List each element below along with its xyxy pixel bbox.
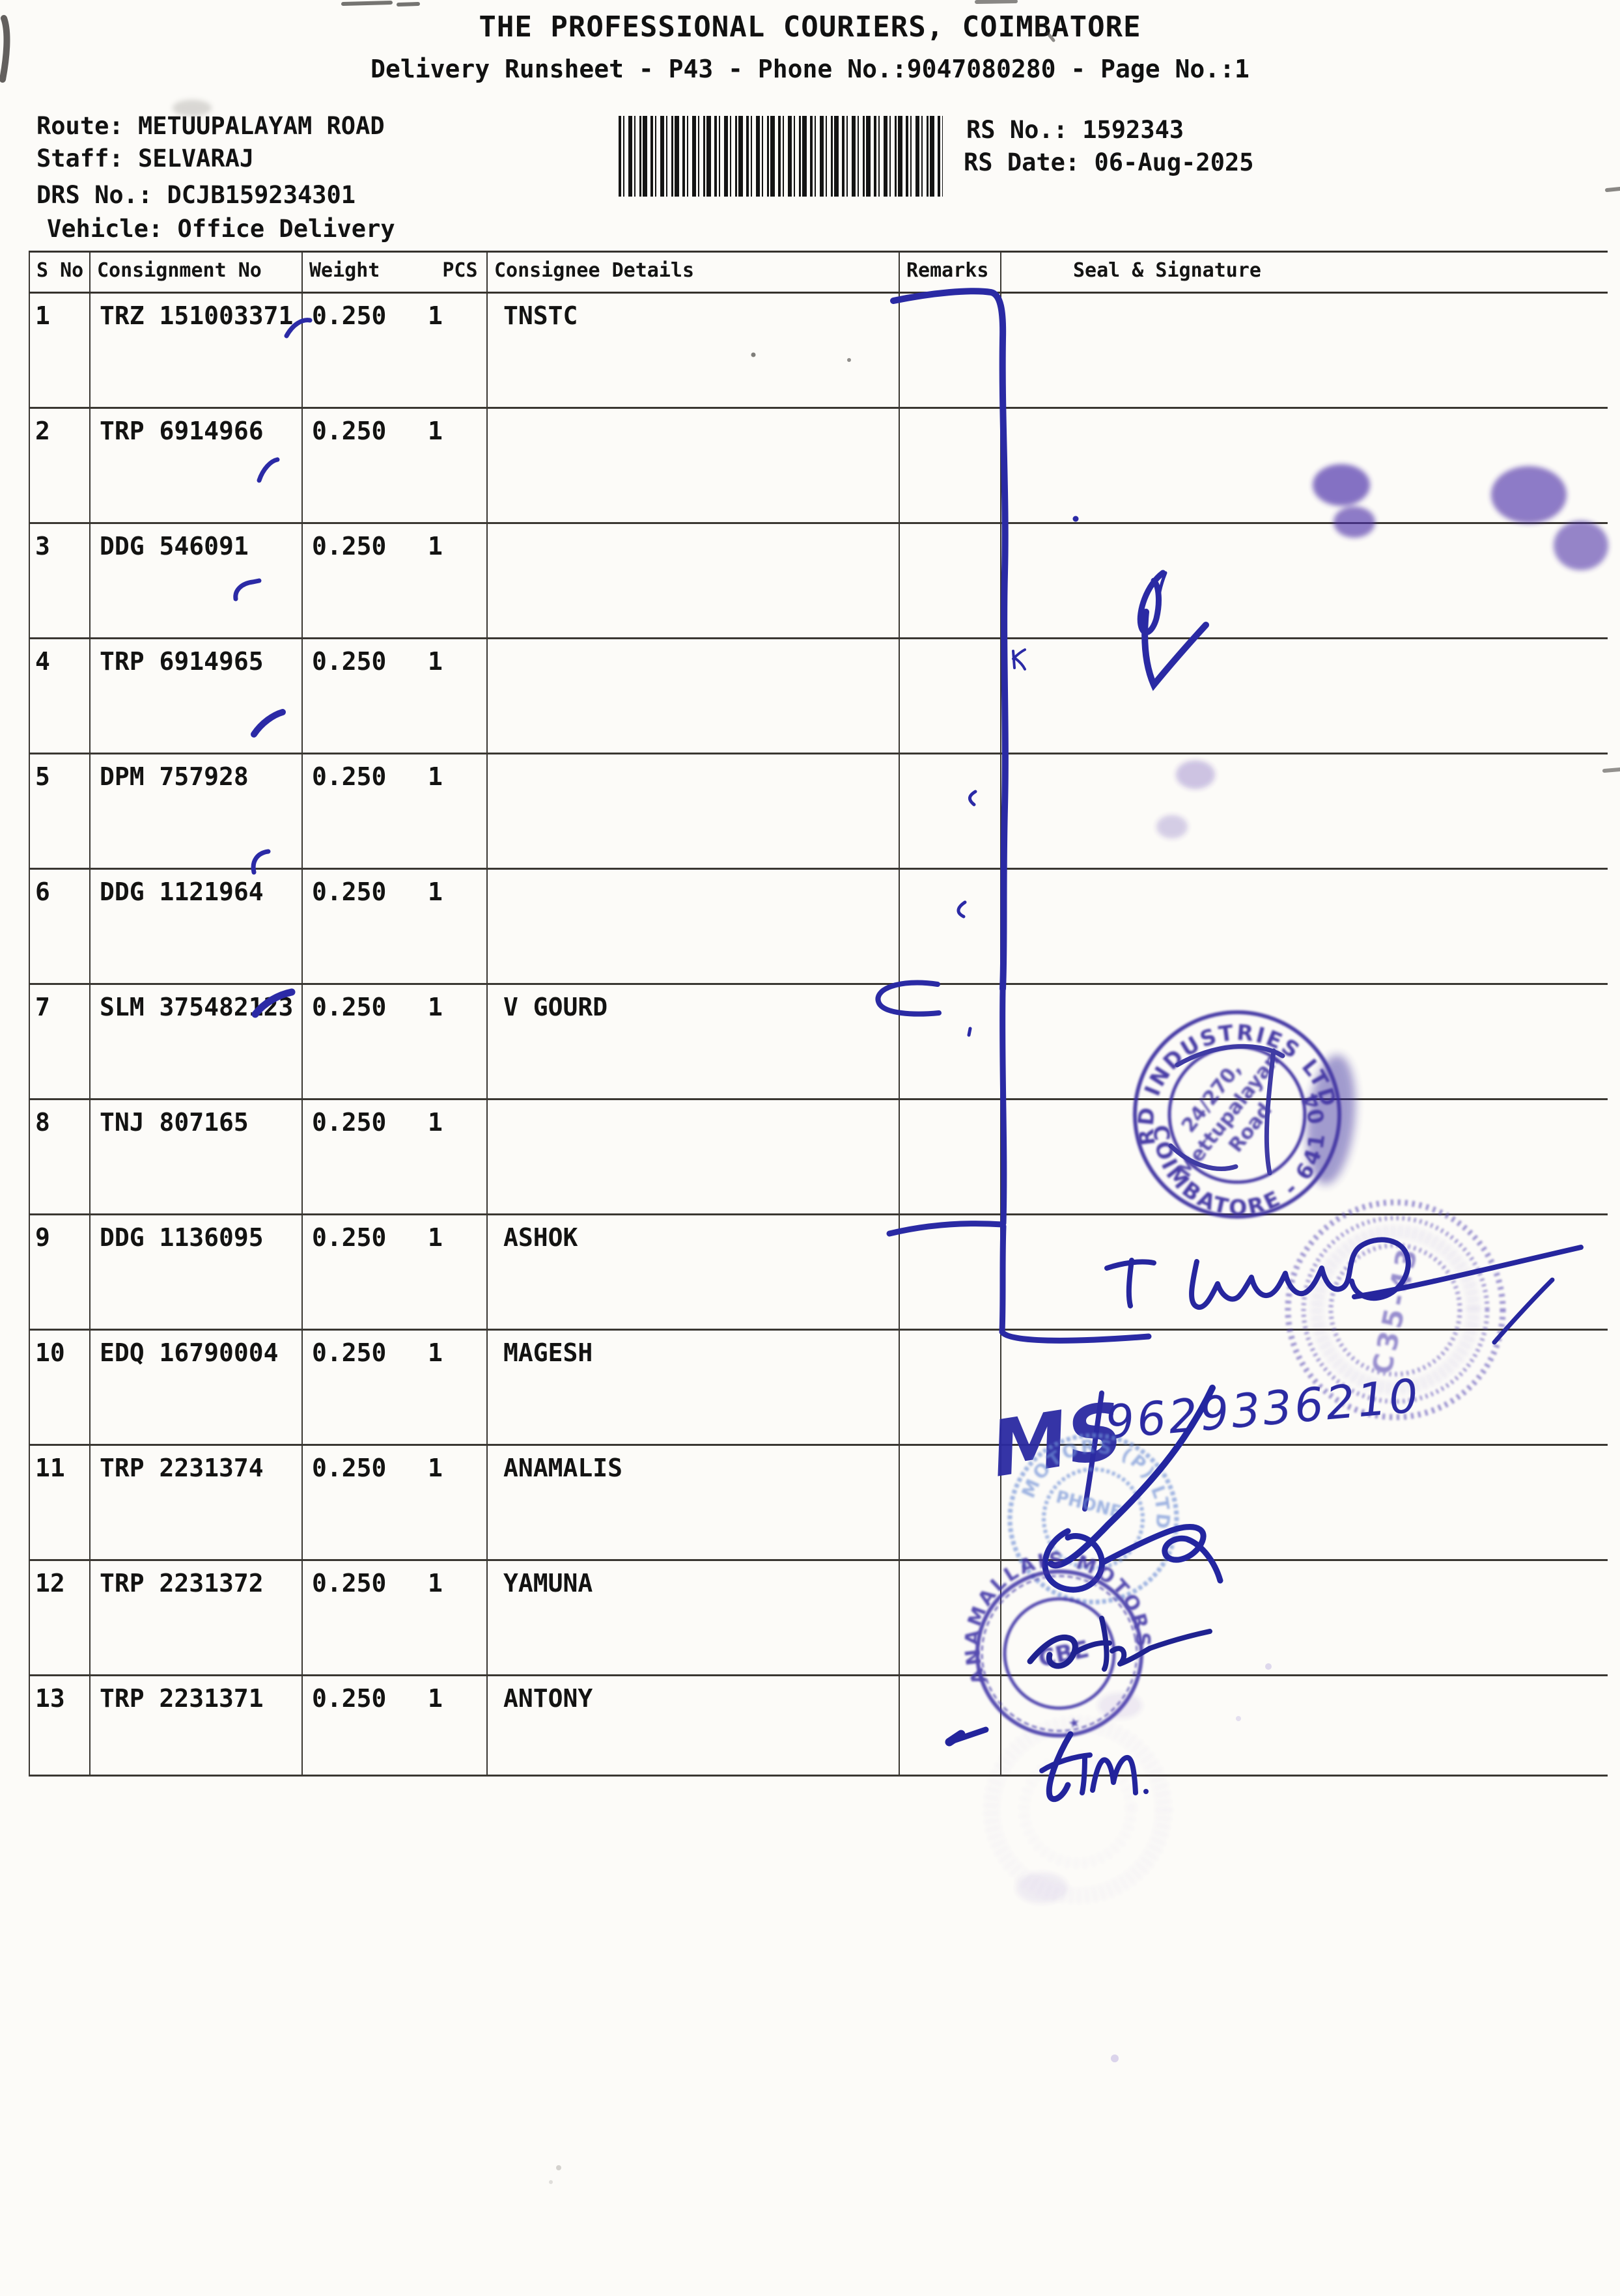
cell-seal <box>1001 1330 1608 1445</box>
col-header-pcs: PCS <box>442 259 477 282</box>
barcode-icon <box>619 116 943 197</box>
cell-remarks <box>899 523 1001 639</box>
table-header-row: S No Consignment No WeightPCS Consignee … <box>29 252 1608 293</box>
staff-label: Staff: <box>36 145 124 173</box>
col-header-weight-pcs: WeightPCS <box>302 252 487 293</box>
cell-s-no: 3 <box>30 532 89 560</box>
cell-consignee: TNSTC <box>488 301 899 330</box>
table-row: 8TNJ 8071650.2501 <box>29 1100 1608 1215</box>
cell-weight: 0.250 <box>312 1108 386 1137</box>
cell-remarks <box>899 1445 1001 1560</box>
rs-date-label: RS Date: <box>964 148 1080 176</box>
cell-remarks <box>899 1676 1001 1776</box>
cell-remarks <box>899 869 1001 984</box>
cell-seal <box>1001 1676 1608 1776</box>
cell-pcs: 1 <box>428 1454 443 1482</box>
cell-remarks <box>899 293 1001 408</box>
col-header-seal-label: Seal & Signature <box>1008 259 1608 282</box>
cell-consignment-no: DDG 1121964 <box>91 878 301 906</box>
cell-weight: 0.250 <box>312 1454 386 1482</box>
cell-s-no: 6 <box>30 878 89 906</box>
cell-weight: 0.250 <box>312 1338 386 1367</box>
cell-remarks <box>899 754 1001 869</box>
cell-weight: 0.250 <box>312 878 386 906</box>
cell-weight: 0.250 <box>312 532 386 560</box>
rs-no-value: 1592343 <box>1082 116 1184 144</box>
cell-weight: 0.250 <box>312 417 386 445</box>
table-row: 12TRP 22313720.2501YAMUNA <box>29 1560 1608 1676</box>
cell-weight: 0.250 <box>312 1223 386 1252</box>
cell-s-no: 8 <box>30 1108 89 1137</box>
table-row: 7SLM 3754821230.2501V GOURD <box>29 984 1608 1100</box>
cell-seal <box>1001 1215 1608 1330</box>
page-title: THE PROFESSIONAL COURIERS, COIMBATORE <box>0 10 1620 44</box>
cell-s-no: 1 <box>30 301 89 330</box>
cell-seal <box>1001 1560 1608 1676</box>
cell-s-no: 11 <box>30 1454 89 1482</box>
cell-consignment-no: DDG 546091 <box>91 532 301 560</box>
route-line: Route: METUUPALAYAM ROAD <box>36 112 385 140</box>
cell-seal <box>1001 984 1608 1100</box>
cell-pcs: 1 <box>428 1108 443 1137</box>
cell-s-no: 7 <box>30 993 89 1021</box>
runsheet-table: S No Consignment No WeightPCS Consignee … <box>29 251 1608 1777</box>
cell-s-no: 10 <box>30 1338 89 1367</box>
cell-pcs: 1 <box>428 878 443 906</box>
col-header-seal: Seal & Signature <box>1001 252 1608 293</box>
cell-pcs: 1 <box>428 1684 443 1713</box>
cell-remarks <box>899 1100 1001 1215</box>
col-header-consignee: Consignee Details <box>487 252 899 293</box>
table-row: 10EDQ 167900040.2501MAGESH <box>29 1330 1608 1445</box>
staff-value: SELVARAJ <box>138 145 254 173</box>
cell-consignment-no: DPM 757928 <box>91 762 301 791</box>
cell-pcs: 1 <box>428 532 443 560</box>
cell-pcs: 1 <box>428 1569 443 1598</box>
cell-consignee: MAGESH <box>488 1338 899 1367</box>
cell-seal <box>1001 408 1608 523</box>
page-subtitle: Delivery Runsheet - P43 - Phone No.:9047… <box>0 55 1620 83</box>
table-row: 9DDG 11360950.2501ASHOK <box>29 1215 1608 1330</box>
col-header-consignment-no: Consignment No <box>90 252 302 293</box>
table-row: 4TRP 69149650.2501 <box>29 639 1608 754</box>
cell-remarks <box>899 1330 1001 1445</box>
cell-s-no: 13 <box>30 1684 89 1713</box>
cell-consignment-no: TRZ 151003371 <box>91 301 301 330</box>
vehicle-value: Office Delivery <box>178 215 395 243</box>
rs-no-label: RS No.: <box>966 116 1068 144</box>
cell-remarks <box>899 1215 1001 1330</box>
col-header-weight: Weight <box>309 259 380 282</box>
cell-consignee: ANAMALIS <box>488 1454 899 1482</box>
cell-consignment-no: TRP 6914966 <box>91 417 301 445</box>
cell-consignment-no: TRP 2231371 <box>91 1684 301 1713</box>
route-label: Route: <box>36 112 124 140</box>
cell-s-no: 2 <box>30 417 89 445</box>
table-row: 2TRP 69149660.2501 <box>29 408 1608 523</box>
cell-weight: 0.250 <box>312 1569 386 1598</box>
cell-seal <box>1001 1100 1608 1215</box>
cell-consignment-no: DDG 1136095 <box>91 1223 301 1252</box>
drs-label: DRS No.: <box>36 181 152 209</box>
cell-seal <box>1001 639 1608 754</box>
cell-pcs: 1 <box>428 1338 443 1367</box>
cell-seal <box>1001 754 1608 869</box>
cell-consignment-no: TNJ 807165 <box>91 1108 301 1137</box>
cell-weight: 0.250 <box>312 647 386 676</box>
col-header-remarks: Remarks <box>899 252 1001 293</box>
table-row: 3DDG 5460910.2501 <box>29 523 1608 639</box>
cell-seal <box>1001 523 1608 639</box>
cell-remarks <box>899 408 1001 523</box>
cell-seal <box>1001 1445 1608 1560</box>
scanned-delivery-runsheet: THE PROFESSIONAL COURIERS, COIMBATORE De… <box>0 0 1620 2296</box>
cell-pcs: 1 <box>428 1223 443 1252</box>
staff-line: Staff: SELVARAJ <box>36 145 254 173</box>
cell-s-no: 5 <box>30 762 89 791</box>
cell-weight: 0.250 <box>312 993 386 1021</box>
cell-weight: 0.250 <box>312 762 386 791</box>
cell-s-no: 4 <box>30 647 89 676</box>
cell-pcs: 1 <box>428 647 443 676</box>
drs-line: DRS No.: DCJB159234301 <box>36 181 356 209</box>
cell-consignee: ANTONY <box>488 1684 899 1713</box>
cell-seal <box>1001 869 1608 984</box>
vehicle-label: Vehicle: <box>47 215 163 243</box>
cell-pcs: 1 <box>428 417 443 445</box>
cell-pcs: 1 <box>428 993 443 1021</box>
table-row: 1TRZ 1510033710.2501TNSTC <box>29 293 1608 408</box>
route-value: METUUPALAYAM ROAD <box>138 112 385 140</box>
table-row: 11TRP 22313740.2501ANAMALIS <box>29 1445 1608 1560</box>
col-header-s-no: S No <box>29 252 90 293</box>
vehicle-line: Vehicle: Office Delivery <box>47 215 395 243</box>
rs-no-line: RS No.: 1592343 <box>966 116 1184 144</box>
cell-remarks <box>899 1560 1001 1676</box>
cell-pcs: 1 <box>428 762 443 791</box>
cell-s-no: 12 <box>30 1569 89 1598</box>
cell-weight: 0.250 <box>312 1684 386 1713</box>
cell-consignment-no: TRP 6914965 <box>91 647 301 676</box>
table-row: 5DPM 7579280.2501 <box>29 754 1608 869</box>
cell-consignment-no: SLM 375482123 <box>91 993 301 1021</box>
table-row: 6DDG 11219640.2501 <box>29 869 1608 984</box>
cell-s-no: 9 <box>30 1223 89 1252</box>
cell-consignee: V GOURD <box>488 993 899 1021</box>
cell-remarks <box>899 639 1001 754</box>
cell-seal <box>1001 293 1608 408</box>
rs-date-value: 06-Aug-2025 <box>1095 148 1254 176</box>
drs-value: DCJB159234301 <box>167 181 356 209</box>
cell-pcs: 1 <box>428 301 443 330</box>
cell-consignment-no: TRP 2231372 <box>91 1569 301 1598</box>
cell-consignee: ASHOK <box>488 1223 899 1252</box>
table-row: 13TRP 22313710.2501ANTONY <box>29 1676 1608 1776</box>
cell-remarks <box>899 984 1001 1100</box>
cell-consignee: YAMUNA <box>488 1569 899 1598</box>
cell-consignment-no: EDQ 16790004 <box>91 1338 301 1367</box>
cell-weight: 0.250 <box>312 301 386 330</box>
cell-consignment-no: TRP 2231374 <box>91 1454 301 1482</box>
rs-date-line: RS Date: 06-Aug-2025 <box>964 148 1254 176</box>
